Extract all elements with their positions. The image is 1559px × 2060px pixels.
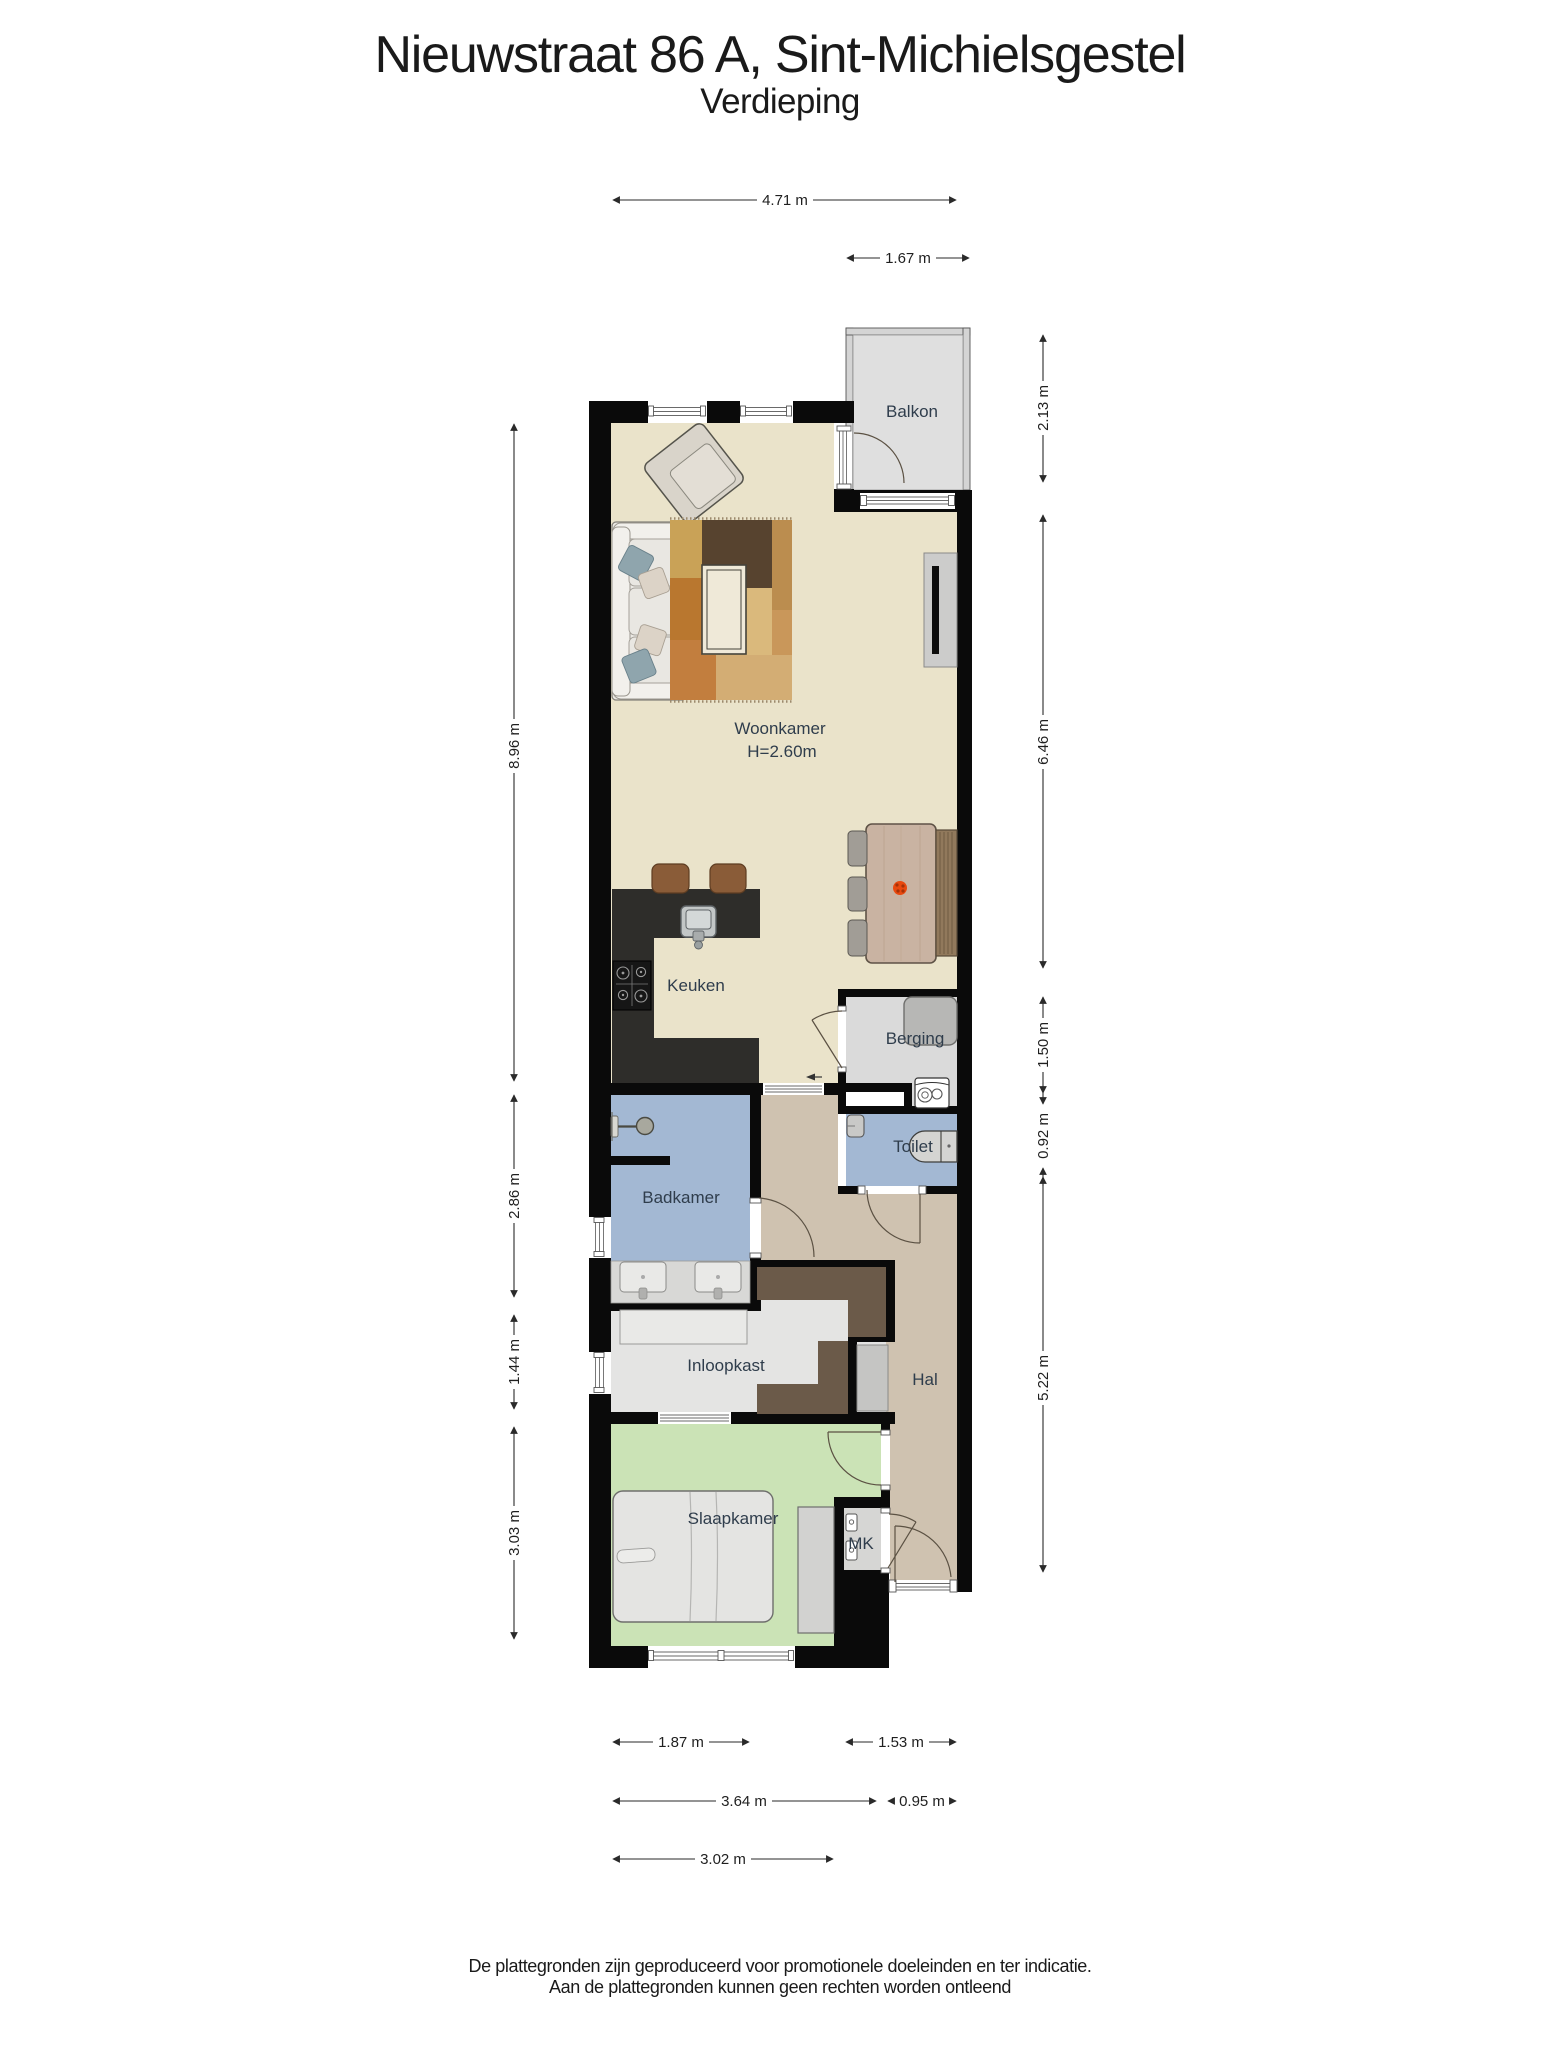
svg-text:Balkon: Balkon [886,402,938,421]
svg-text:2.86 m: 2.86 m [506,1173,523,1219]
svg-text:De plattegronden zijn geproduc: De plattegronden zijn geproduceerd voor … [468,1956,1091,1976]
svg-text:Woonkamer: Woonkamer [734,719,826,738]
svg-text:Aan de plattegronden kunnen ge: Aan de plattegronden kunnen geen rechten… [549,1977,1011,1997]
svg-text:MK: MK [848,1534,874,1553]
svg-text:3.03 m: 3.03 m [506,1510,523,1556]
svg-text:2.13 m: 2.13 m [1035,385,1052,431]
svg-text:4.71 m: 4.71 m [762,192,808,209]
svg-text:3.64 m: 3.64 m [721,1793,767,1810]
svg-text:Toilet: Toilet [893,1137,933,1156]
svg-text:Badkamer: Badkamer [642,1188,720,1207]
svg-text:H=2.60m: H=2.60m [747,742,816,761]
svg-text:Verdieping: Verdieping [700,82,859,121]
svg-text:8.96 m: 8.96 m [506,723,523,769]
svg-text:Berging: Berging [886,1029,945,1048]
svg-text:1.50 m: 1.50 m [1035,1022,1052,1068]
svg-text:Keuken: Keuken [667,976,725,995]
svg-text:0.95 m: 0.95 m [899,1793,945,1810]
svg-text:1.53 m: 1.53 m [878,1734,924,1751]
svg-text:6.46 m: 6.46 m [1035,719,1052,765]
svg-text:Inloopkast: Inloopkast [687,1356,765,1375]
svg-text:1.67 m: 1.67 m [885,250,931,267]
svg-text:1.87 m: 1.87 m [658,1734,704,1751]
svg-text:1.44 m: 1.44 m [506,1339,523,1385]
svg-text:5.22 m: 5.22 m [1035,1355,1052,1401]
svg-text:Hal: Hal [912,1370,938,1389]
svg-text:Nieuwstraat 86 A, Sint-Michiel: Nieuwstraat 86 A, Sint-Michielsgestel [374,26,1185,84]
svg-text:Slaapkamer: Slaapkamer [688,1509,779,1528]
svg-text:3.02 m: 3.02 m [700,1851,746,1868]
svg-text:0.92 m: 0.92 m [1035,1113,1052,1159]
